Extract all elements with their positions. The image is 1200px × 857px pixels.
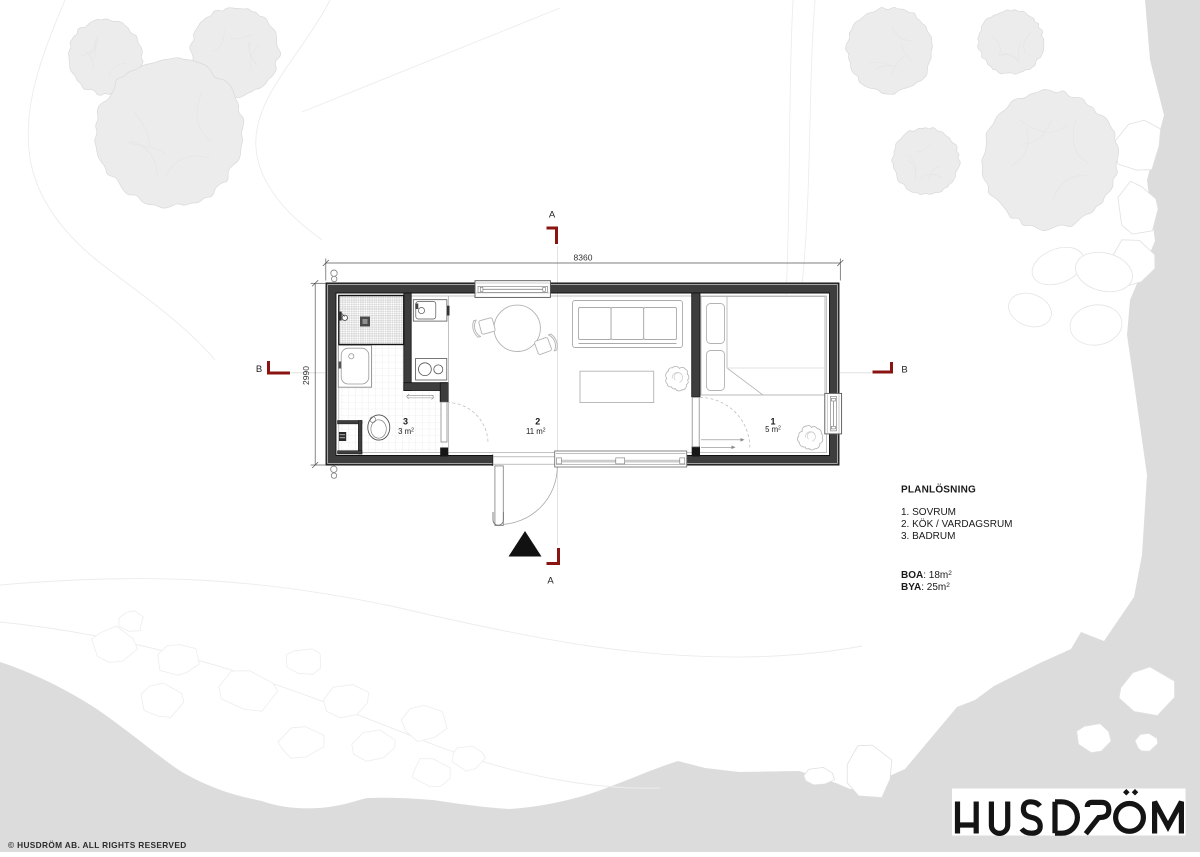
svg-text:3: 3 [403,417,408,427]
svg-text:B: B [901,365,907,376]
svg-text:PLANLÖSNING: PLANLÖSNING [901,483,976,496]
svg-text:© HUSDRÖM AB. ALL RIGHTS RESER: © HUSDRÖM AB. ALL RIGHTS RESERVED [8,840,187,850]
svg-text:1. SOVRUM: 1. SOVRUM [901,507,956,518]
svg-text:3. BADRUM: 3. BADRUM [901,531,955,542]
svg-text:2990: 2990 [301,366,311,385]
svg-text:2: 2 [535,417,540,427]
svg-text:8360: 8360 [574,253,593,263]
svg-text:A: A [547,576,554,587]
svg-text:2. KÖK / VARDAGSRUM: 2. KÖK / VARDAGSRUM [901,518,1013,530]
svg-text:BOA: 18m2: BOA: 18m2 [901,570,952,581]
svg-text:B: B [256,364,262,375]
svg-text:BYA: 25m2: BYA: 25m2 [901,582,950,593]
svg-text:A: A [549,210,556,221]
